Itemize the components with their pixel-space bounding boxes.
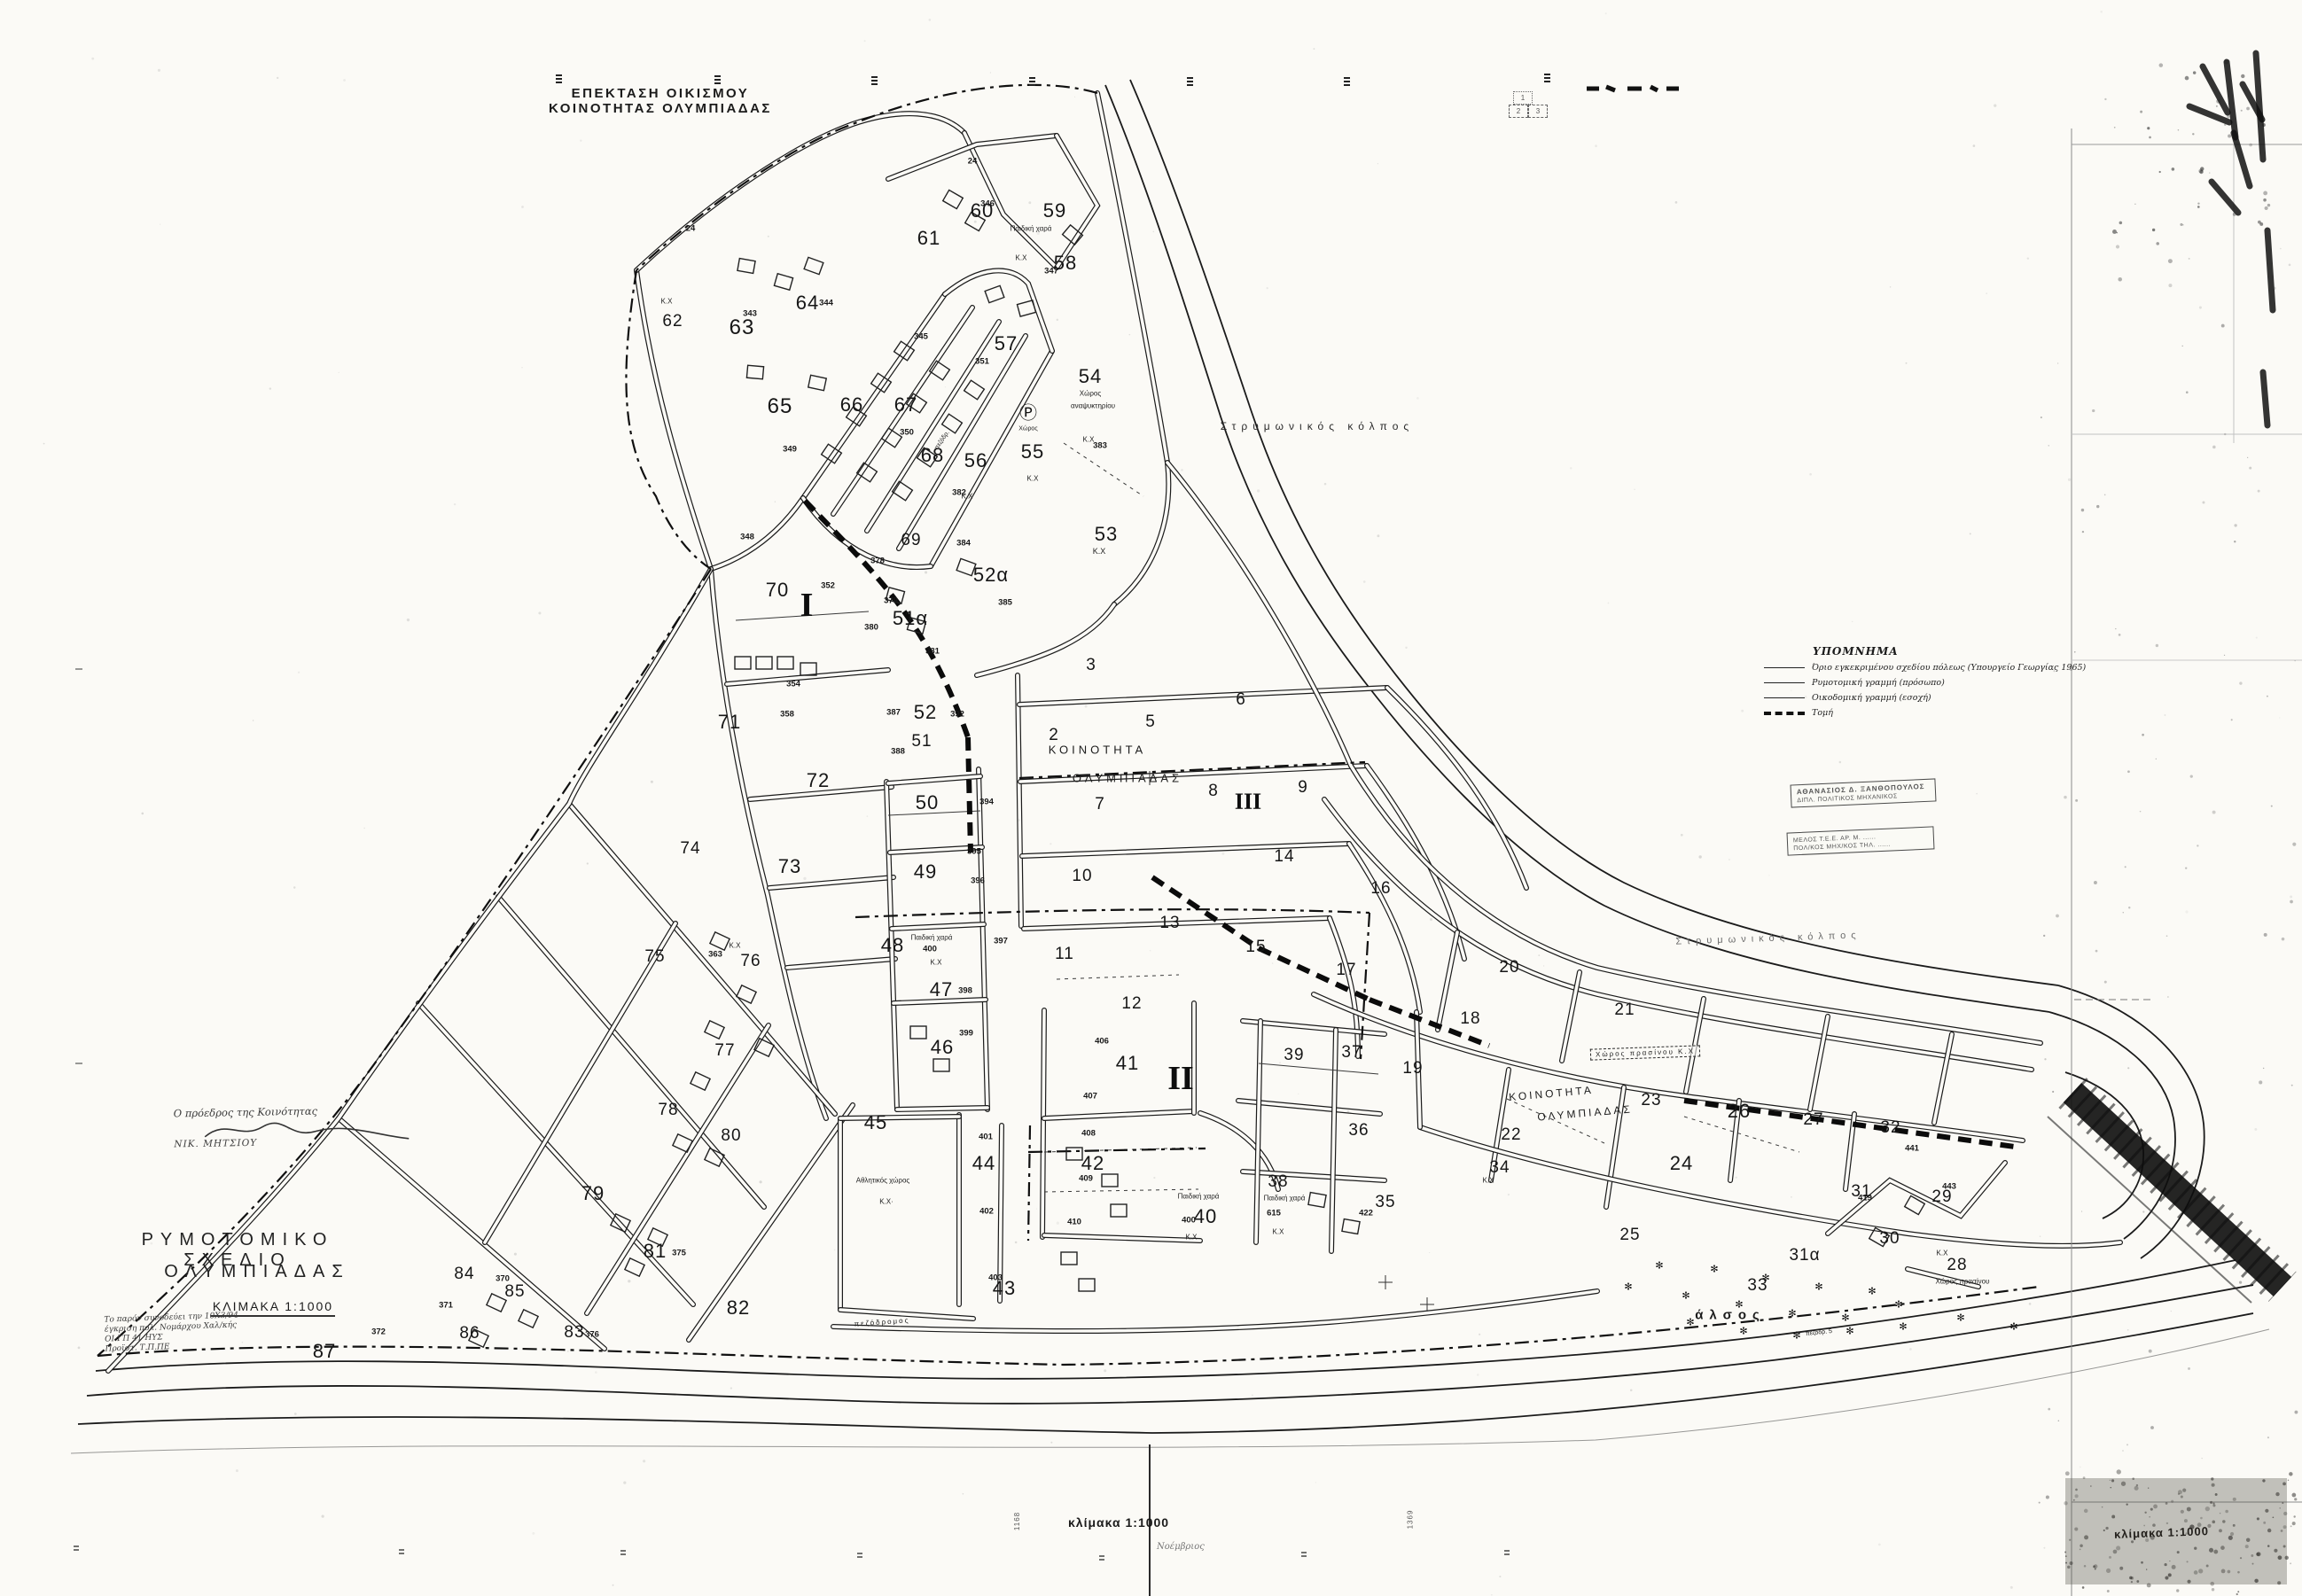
tree-icon: ✻ xyxy=(1655,1260,1663,1272)
block-number: 66 xyxy=(840,393,863,417)
block-number: 87 xyxy=(313,1340,336,1363)
block-number: 16 xyxy=(1370,879,1391,899)
block-number: 30 xyxy=(1879,1229,1900,1249)
block-number: 5 xyxy=(1145,712,1156,732)
plot-number: 401 xyxy=(979,1133,993,1142)
plot-number: 615 xyxy=(1267,1209,1281,1218)
block-number: 59 xyxy=(1043,199,1066,222)
legend-item-label: Όριο εγκεκριμένου σχεδίου πόλεως (Υπουργ… xyxy=(1812,663,2086,673)
block-number: 34 xyxy=(1489,1158,1510,1178)
block-number: 3 xyxy=(1086,656,1096,675)
plot-number: 384 xyxy=(956,539,971,549)
block-number: 70 xyxy=(766,579,789,602)
map-label: ΚΟΙΝΟΤΗΤΑ xyxy=(1049,744,1146,757)
parking-icon: Ⓟ xyxy=(1019,399,1037,424)
plot-number: 407 xyxy=(1083,1092,1097,1102)
legend: ΥΠΟΜΝΗΜΑ Όριο εγκεκριμένου σχεδίου πόλεω… xyxy=(1764,645,2136,718)
plot-number: 388 xyxy=(891,747,905,757)
map-label: Κ.Χ xyxy=(1027,475,1039,483)
legend-item: Τομή xyxy=(1764,708,2136,718)
block-number: 83 xyxy=(564,1323,584,1343)
plot-number: 406 xyxy=(1095,1037,1109,1047)
block-number: 85 xyxy=(504,1282,525,1302)
block-number: 13 xyxy=(1159,914,1180,933)
block-number: 41 xyxy=(1116,1052,1139,1075)
plot-number: 398 xyxy=(958,986,972,996)
plot-number: 387 xyxy=(886,708,901,718)
tree-icon: ✻ xyxy=(1792,1330,1800,1342)
legend-item-label: Οικοδομική γραμμή (εσοχή) xyxy=(1812,693,1931,703)
block-number: 24 xyxy=(1670,1152,1693,1175)
map-label: Κ.Χ xyxy=(1186,1234,1198,1242)
plot-number: 400 xyxy=(923,945,937,954)
tree-icon: ✻ xyxy=(1894,1299,1902,1311)
plot-number: 348 xyxy=(740,533,754,542)
block-number: 50 xyxy=(916,791,939,814)
scan-noise xyxy=(43,11,2298,1596)
legend-item: Οικοδομική γραμμή (εσοχή) xyxy=(1764,693,2136,703)
plot-number: 408 xyxy=(1081,1129,1096,1139)
plot-number: 354 xyxy=(786,680,800,689)
block-number: 9 xyxy=(1298,778,1308,798)
block-number: 56 xyxy=(964,449,987,472)
plot-number: 402 xyxy=(979,1207,994,1217)
legend-item-label: Ρυμοτομική γραμμή (πρόσωπο) xyxy=(1812,678,1945,688)
map-label: αναψυκτηρίου xyxy=(1071,402,1115,410)
plot-number: 396 xyxy=(971,876,985,886)
block-number: 80 xyxy=(721,1126,741,1146)
tree-icon: ✻ xyxy=(1868,1286,1876,1297)
block-number: 20 xyxy=(1499,958,1519,977)
coastline xyxy=(71,80,2269,1453)
map-label: Κ.Χ· xyxy=(879,1198,893,1206)
block-number: 72 xyxy=(807,769,830,792)
block-number: 81 xyxy=(644,1240,667,1263)
grid-edge-number: 1369 xyxy=(1406,1510,1414,1530)
tree-icon: ✻ xyxy=(1686,1317,1694,1328)
block-number: 82 xyxy=(727,1296,750,1320)
map-label: Κ.Χ xyxy=(962,493,973,501)
map-label: Χώρος πρασίνου xyxy=(1936,1278,1990,1286)
block-number: 73 xyxy=(778,855,801,878)
building-footprints xyxy=(469,190,1924,1347)
block-number: 47 xyxy=(930,978,953,1001)
plot-number: 24 xyxy=(968,157,978,167)
sheet-index-cell: 2 xyxy=(1509,105,1528,118)
plot-number: 358 xyxy=(780,710,794,720)
block-number: 40 xyxy=(1194,1205,1217,1228)
map-label: Στρυμωνικός κόλπος xyxy=(1221,420,1414,432)
street-network xyxy=(108,93,2120,1371)
map-label: Παιδική χαρά xyxy=(1178,1193,1220,1201)
block-number: 53 xyxy=(1095,523,1118,546)
map-label: Κ.Χ xyxy=(1483,1177,1494,1185)
plot-number: 394 xyxy=(979,798,994,807)
plot-number: 375 xyxy=(672,1249,686,1258)
block-number: 6 xyxy=(1236,690,1246,710)
plot-number: 371 xyxy=(439,1301,453,1311)
map-label: ΟΛΥΜΠΙΑΔΑΣ xyxy=(1073,772,1182,785)
block-number: 71 xyxy=(718,711,741,734)
block-number: 42 xyxy=(1081,1152,1104,1175)
plot-number: 345 xyxy=(914,332,928,342)
block-number: 61 xyxy=(917,227,940,250)
block-number: 84 xyxy=(454,1265,474,1284)
block-number: 45 xyxy=(864,1111,887,1134)
block-number: 44 xyxy=(972,1152,995,1175)
sheet-index-cell: 1 xyxy=(1513,91,1533,105)
tree-icon: ✻ xyxy=(2009,1321,2017,1333)
tree-icon: ✻ xyxy=(1846,1326,1853,1337)
scan-artifacts xyxy=(2048,53,2287,1584)
plan-title-line2: ΟΛΥΜΠΙΑΔΑΣ xyxy=(155,1262,359,1282)
plot-number: 347 xyxy=(1044,267,1058,276)
plot-number: 409 xyxy=(1079,1174,1093,1184)
map-label: Κ.Χ xyxy=(1093,547,1106,556)
tree-icon: ✻ xyxy=(1899,1321,1907,1333)
map-label: Κ.Χ xyxy=(1273,1228,1284,1236)
plot-number: 441 xyxy=(1905,1144,1919,1154)
block-number: 52α xyxy=(973,564,1009,587)
signature-squiggle-icon xyxy=(200,1114,414,1148)
block-number: 17 xyxy=(1336,961,1356,980)
map-label: Χώρος xyxy=(1080,390,1101,398)
block-number: 14 xyxy=(1274,847,1294,867)
plot-number: 363 xyxy=(708,950,722,960)
page-title: ΕΠΕΚΤΑΣΗ ΟΙΚΙΣΜΟΥ ΚΟΙΝΟΤΗΤΑΣ ΟΛΥΜΠΙΑΔΑΣ xyxy=(519,86,802,116)
plot-number: 24 xyxy=(686,224,696,234)
block-number: 22 xyxy=(1501,1125,1521,1145)
block-number: 31α xyxy=(1789,1246,1820,1265)
map-label: Παιδική χαρά xyxy=(1264,1195,1306,1203)
tree-icon: ✻ xyxy=(1761,1273,1769,1284)
tree-icon: ✻ xyxy=(1682,1290,1689,1302)
map-label: Κ.Χ xyxy=(1937,1250,1948,1257)
bottom-date-note: Νοέμβριος xyxy=(1157,1542,1205,1552)
block-number: 32 xyxy=(1880,1118,1900,1138)
map-label: Κ.Χ xyxy=(931,959,942,967)
block-number: 10 xyxy=(1072,867,1092,886)
plot-number: 399 xyxy=(959,1029,973,1039)
tree-icon: ✻ xyxy=(1956,1312,1964,1324)
block-number: 51α xyxy=(893,607,928,630)
block-number: 37 xyxy=(1341,1043,1362,1063)
block-number: 26 xyxy=(1728,1100,1751,1123)
sheet-index-cell: 3 xyxy=(1528,105,1548,118)
plot-number: 397 xyxy=(994,937,1008,946)
legend-solid-line-icon xyxy=(1764,667,1805,668)
plot-number: 410 xyxy=(1067,1218,1081,1227)
sheet-index-diagram: 123 xyxy=(1509,91,1548,118)
plot-number: 351 xyxy=(975,357,989,367)
tree-icon: ✻ xyxy=(1735,1299,1743,1311)
plot-number: 344 xyxy=(819,299,833,308)
block-number: 76 xyxy=(740,952,761,971)
legend-title: ΥΠΟΜΝΗΜΑ xyxy=(1813,645,2136,658)
legend-thin-line-icon xyxy=(1764,682,1805,683)
block-number: 63 xyxy=(730,315,755,340)
block-number: 74 xyxy=(680,839,700,859)
legend-item-label: Τομή xyxy=(1812,708,1833,718)
plot-number: 380 xyxy=(864,623,878,633)
block-number: 7 xyxy=(1095,795,1105,814)
tree-icon: ✻ xyxy=(1788,1308,1796,1320)
legend-items: Όριο εγκεκριμένου σχεδίου πόλεως (Υπουργ… xyxy=(1764,663,2136,718)
plot-number: 349 xyxy=(783,445,797,455)
block-number: 23 xyxy=(1641,1091,1661,1110)
map-label: Κ.Χ xyxy=(730,942,741,950)
block-number: 11 xyxy=(1055,945,1074,964)
block-number: 57 xyxy=(995,332,1018,355)
block-number: 64 xyxy=(796,292,819,315)
plot-number: 352 xyxy=(821,581,835,591)
president-signature-block: Ο πρόεδρος της Κοινότητας ΝΙΚ. ΜΗΤΣΙΟΥ xyxy=(174,1105,318,1150)
tree-icon: ✻ xyxy=(1841,1312,1849,1324)
plot-number: 379 xyxy=(884,596,898,606)
grid-edge-number: 1168 xyxy=(1013,1512,1021,1530)
block-number: 39 xyxy=(1284,1046,1304,1065)
block-number: 75 xyxy=(644,947,665,967)
plan-drawing xyxy=(0,0,2302,1596)
block-number: 15 xyxy=(1245,938,1266,957)
plot-number: 400 xyxy=(1182,1216,1196,1226)
plot-number: 370 xyxy=(496,1274,510,1284)
block-number: 77 xyxy=(714,1041,735,1061)
legend-thick-dash-icon xyxy=(1764,712,1805,715)
block-number: 27 xyxy=(1803,1110,1823,1130)
plot-number: 395 xyxy=(967,847,981,857)
plot-number: 381 xyxy=(925,647,940,657)
tree-icon: ✻ xyxy=(1739,1326,1747,1337)
plot-number: 403 xyxy=(988,1273,1003,1283)
legend-item: Όριο εγκεκριμένου σχεδίου πόλεως (Υπουργ… xyxy=(1764,663,2136,673)
block-number: 35 xyxy=(1375,1193,1395,1212)
block-number: 28 xyxy=(1947,1256,1967,1275)
plot-number: 392 xyxy=(950,710,964,720)
plot-number: 443 xyxy=(1942,1182,1956,1192)
plot-number: 378 xyxy=(870,557,885,566)
plot-number: 419 xyxy=(1858,1194,1872,1203)
block-number: 36 xyxy=(1348,1121,1369,1141)
block-number: 65 xyxy=(768,394,793,419)
plot-number: 343 xyxy=(743,309,757,319)
plot-number: 383 xyxy=(1093,441,1107,451)
block-number: 52 xyxy=(914,701,937,724)
fold-and-grid-lines xyxy=(74,74,2302,1596)
block-number: 12 xyxy=(1121,994,1142,1014)
tree-icon: ✻ xyxy=(1710,1264,1718,1275)
block-number: 54 xyxy=(1079,365,1102,388)
plan-boundary xyxy=(98,85,2039,1365)
block-number: 46 xyxy=(931,1036,954,1059)
block-number: 19 xyxy=(1402,1059,1423,1078)
sector-roman-numeral: ΙΙΙ xyxy=(1235,789,1261,815)
block-number: 21 xyxy=(1614,1000,1635,1020)
sector-roman-numeral: Ι xyxy=(800,586,814,625)
block-number: 51 xyxy=(911,732,932,751)
block-number: 25 xyxy=(1619,1226,1640,1245)
map-label: Κ.Χ xyxy=(1083,436,1095,444)
block-number: 49 xyxy=(914,860,937,884)
map-label: Κ.Χ xyxy=(1016,254,1027,262)
block-number: 67 xyxy=(894,393,917,417)
plot-number: 422 xyxy=(1359,1209,1373,1218)
plot-number: 385 xyxy=(998,598,1012,608)
map-label: Κ.Χ xyxy=(661,298,673,306)
legend-item: Ρυμοτομική γραμμή (πρόσωπο) xyxy=(1764,678,2136,688)
block-number: 79 xyxy=(581,1182,605,1205)
block-number: 48 xyxy=(881,934,904,957)
block-number: 55 xyxy=(1021,440,1044,463)
block-number: 69 xyxy=(901,531,921,550)
block-number: 62 xyxy=(662,312,683,331)
map-label: Παιδική χαρά xyxy=(1011,225,1052,233)
sector-roman-numeral: ΙΙ xyxy=(1167,1059,1194,1098)
block-number: 78 xyxy=(658,1101,678,1120)
block-number: 8 xyxy=(1208,782,1219,801)
plot-number: 350 xyxy=(900,428,914,438)
block-number: 38 xyxy=(1268,1172,1288,1192)
block-number: 18 xyxy=(1460,1009,1480,1029)
plot-number: 376 xyxy=(585,1330,599,1340)
tree-icon: ✻ xyxy=(1624,1281,1632,1293)
map-label: Αθλητικός χώρος xyxy=(856,1177,910,1185)
legend-thin-line-icon xyxy=(1764,697,1805,698)
plot-number: 346 xyxy=(980,199,995,209)
plot-number: 372 xyxy=(371,1327,386,1337)
scanned-plan-sheet: ΕΠΕΚΤΑΣΗ ΟΙΚΙΣΜΟΥ ΚΟΙΝΟΤΗΤΑΣ ΟΛΥΜΠΙΑΔΑΣ … xyxy=(0,0,2302,1596)
map-label: άλσος xyxy=(1695,1308,1766,1323)
map-label: Παιδική χαρά xyxy=(911,934,953,942)
tree-icon: ✻ xyxy=(1814,1281,1822,1293)
block-number: 86 xyxy=(459,1324,480,1343)
map-label: Χώρος xyxy=(1018,426,1037,432)
bottom-scale-label: κλίμακα 1:1000 xyxy=(1068,1515,1169,1530)
handwritten-approval-note: Το παρόν συνοδεύει την 10Χ3/94έγκριση πο… xyxy=(104,1311,239,1354)
